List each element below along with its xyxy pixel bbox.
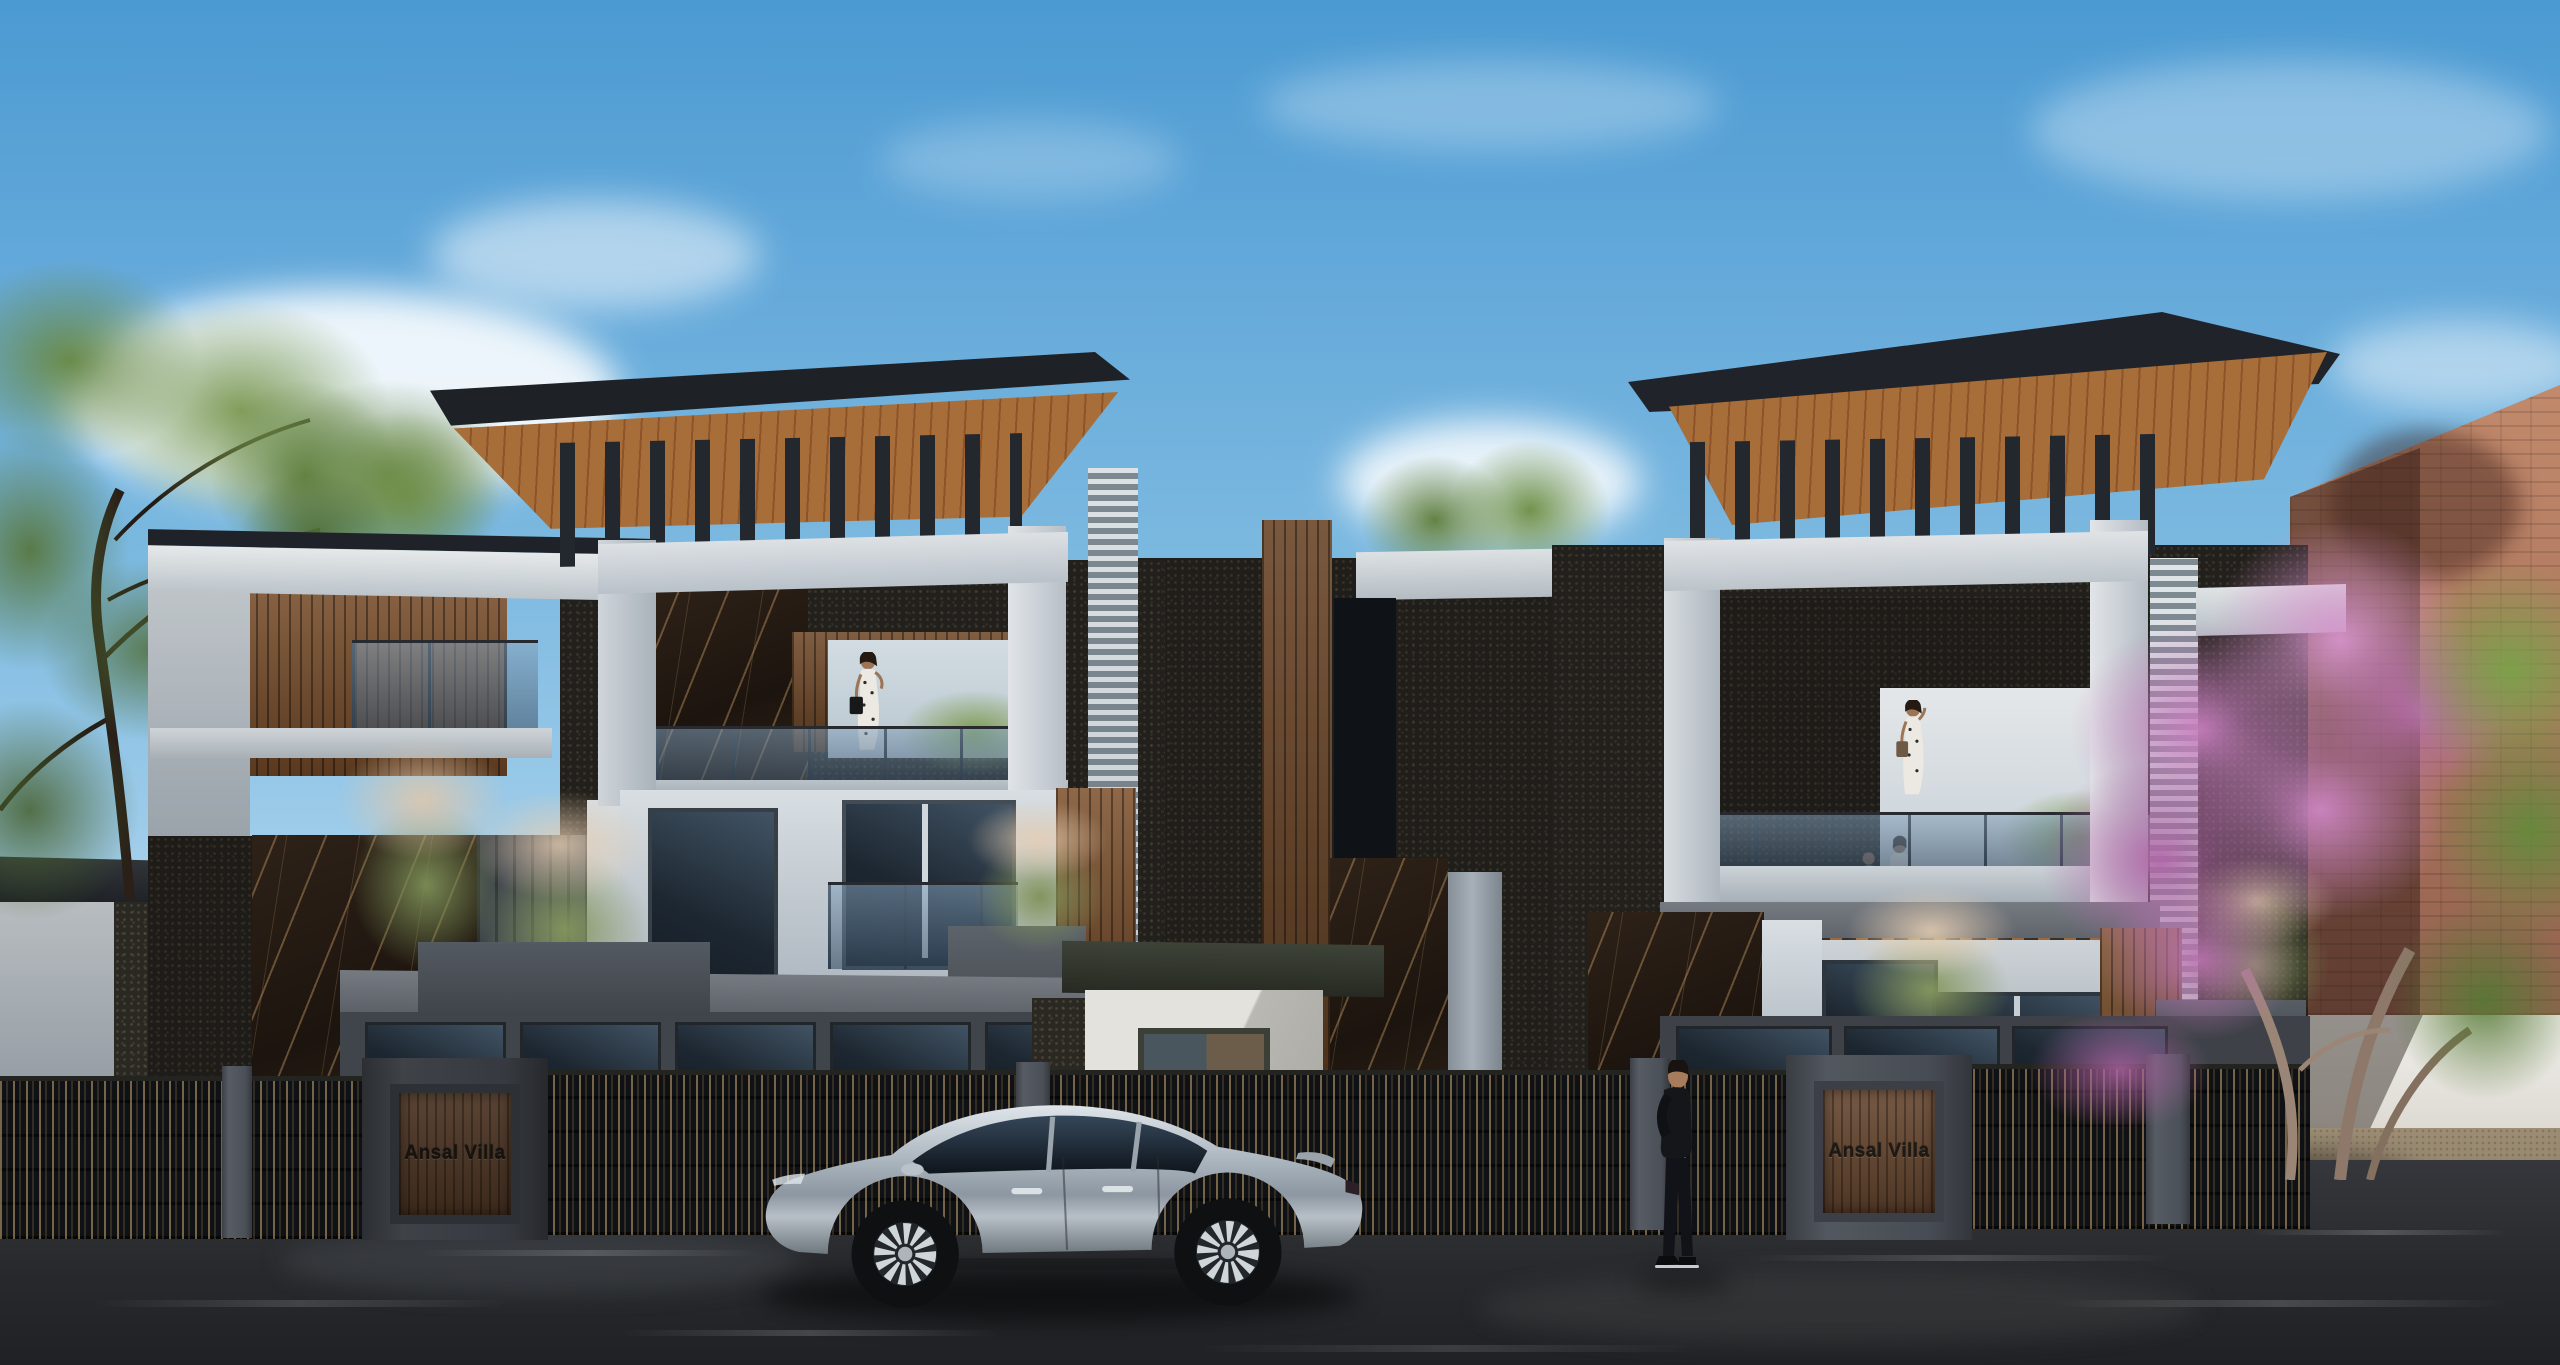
left-wing-balcony-glass [352, 640, 538, 739]
grass-plume [968, 800, 1108, 880]
road-streak [2250, 1230, 2510, 1235]
gate-sign-left: Ansal Villa [390, 1084, 520, 1224]
road-streak [1750, 1255, 2170, 1261]
render-scene: Ansal Villa Ansal Villa [0, 0, 2560, 1365]
gate-sign-right: Ansal Villa [1814, 1081, 1944, 1222]
cloud [430, 200, 760, 310]
gate-pillar-right: Ansal Villa [1786, 1055, 1972, 1240]
fence-post [222, 1066, 252, 1238]
road-streak [1200, 1345, 1700, 1352]
gate-sign-left-text: Ansal Villa [404, 1143, 505, 1165]
woman-right-balcony [1892, 700, 1934, 808]
man-standing [1642, 1060, 1708, 1288]
road-streak [90, 1300, 510, 1307]
grass-plume [470, 790, 650, 900]
right-portal-top-beam [1664, 531, 2148, 591]
cloud [880, 120, 1180, 200]
left-wing-white-slab [150, 728, 552, 758]
road-streak [2050, 1300, 2510, 1307]
gate-pillar-left: Ansal Villa [362, 1058, 548, 1240]
road-streak [620, 1330, 1000, 1336]
fence-segment [0, 1076, 375, 1239]
left-villa-west-wall [148, 560, 250, 842]
road-sheen [1480, 1272, 2200, 1344]
grass-plume [1846, 886, 2016, 976]
cloud [1260, 60, 1720, 150]
car-suv [735, 1058, 1395, 1318]
road-streak [420, 1250, 760, 1256]
gate-sign-right-text: Ansal Villa [1828, 1141, 1929, 1163]
right-portal-column-left [1664, 538, 1720, 910]
gatehouse-roof [1062, 941, 1384, 997]
grass-planter-box [418, 942, 710, 1016]
blossom-blob [2030, 1010, 2210, 1130]
cloud [2030, 60, 2550, 200]
